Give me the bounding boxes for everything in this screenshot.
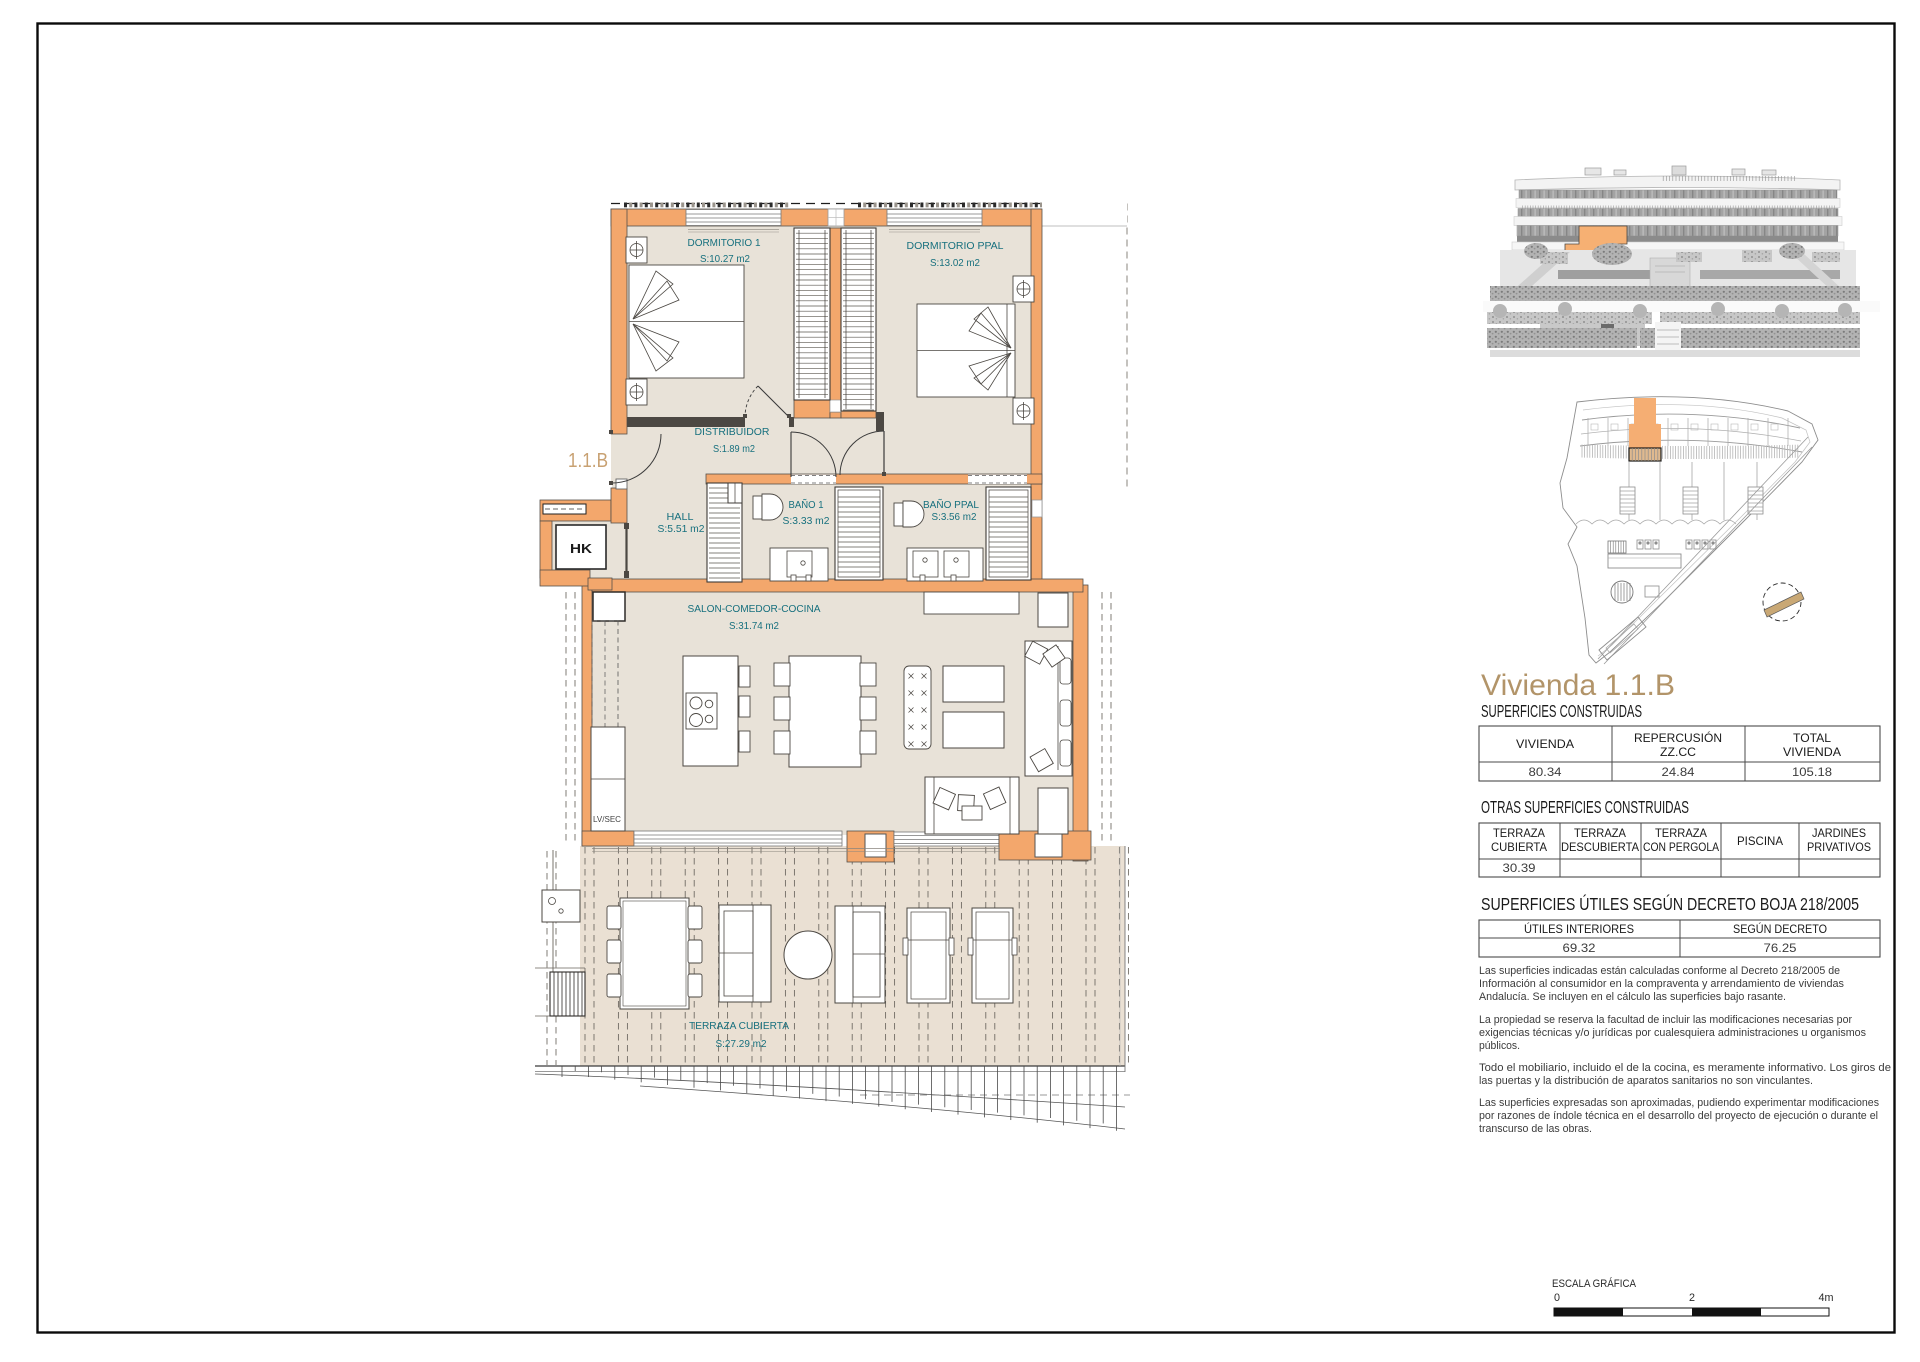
- svg-text:JARDINES: JARDINES: [1812, 826, 1866, 840]
- svg-text:Las superficies indicadas está: Las superficies indicadas están calculad…: [1479, 965, 1840, 977]
- svg-text:ÚTILES INTERIORES: ÚTILES INTERIORES: [1524, 921, 1634, 936]
- svg-text:0: 0: [1554, 1292, 1560, 1304]
- svg-text:30.39: 30.39: [1503, 861, 1536, 875]
- svg-text:80.34: 80.34: [1529, 765, 1562, 779]
- svg-text:BAÑO 1: BAÑO 1: [789, 498, 824, 511]
- svg-text:por razones de índole técnica: por razones de índole técnica en el desa…: [1479, 1110, 1878, 1122]
- svg-text:CUBIERTA: CUBIERTA: [1491, 840, 1547, 854]
- svg-text:exigencias técnicas y/o jurídi: exigencias técnicas y/o jurídicas por cu…: [1479, 1027, 1866, 1039]
- svg-text:TERRAZA: TERRAZA: [1493, 826, 1545, 840]
- svg-text:REPERCUSIÓN: REPERCUSIÓN: [1634, 730, 1722, 745]
- svg-text:Andalucía. Se incluyen en el c: Andalucía. Se incluyen en el cálculo las…: [1479, 991, 1786, 1003]
- svg-text:TOTAL: TOTAL: [1793, 731, 1831, 745]
- svg-text:PRIVATIVOS: PRIVATIVOS: [1807, 840, 1871, 854]
- svg-text:BAÑO PPAL: BAÑO PPAL: [923, 498, 979, 511]
- svg-text:S:31.74 m2: S:31.74 m2: [729, 620, 779, 632]
- svg-text:S:5.51 m2: S:5.51 m2: [658, 523, 705, 535]
- svg-text:SUPERFICIES CONSTRUIDAS: SUPERFICIES CONSTRUIDAS: [1481, 701, 1642, 721]
- svg-text:DORMITORIO 1: DORMITORIO 1: [688, 237, 761, 249]
- svg-text:HALL: HALL: [667, 511, 694, 523]
- svg-text:Las superficies expresadas son: Las superficies expresadas son aproximad…: [1479, 1097, 1879, 1109]
- svg-text:TERRAZA CUBIERTA: TERRAZA CUBIERTA: [689, 1020, 789, 1032]
- svg-text:TERRAZA: TERRAZA: [1655, 826, 1707, 840]
- svg-text:Vivienda 1.1.B: Vivienda 1.1.B: [1481, 669, 1675, 702]
- svg-text:ZZ.CC: ZZ.CC: [1660, 745, 1696, 759]
- svg-text:SALON-COMEDOR-COCINA: SALON-COMEDOR-COCINA: [688, 603, 821, 615]
- svg-text:La propiedad se reserva la fac: La propiedad se reserva la facultad de i…: [1479, 1014, 1852, 1026]
- svg-text:LV/SEC: LV/SEC: [593, 815, 621, 824]
- svg-text:PISCINA: PISCINA: [1737, 834, 1783, 848]
- svg-text:VIVIENDA: VIVIENDA: [1516, 737, 1574, 751]
- svg-text:DESCUBIERTA: DESCUBIERTA: [1561, 840, 1639, 854]
- svg-text:S:3.33 m2: S:3.33 m2: [783, 515, 830, 527]
- svg-text:2: 2: [1689, 1292, 1695, 1304]
- svg-text:HK: HK: [570, 541, 593, 556]
- svg-text:transcurso de las obras.: transcurso de las obras.: [1479, 1123, 1592, 1135]
- svg-text:1.1.B: 1.1.B: [568, 450, 608, 472]
- svg-text:105.18: 105.18: [1792, 765, 1832, 779]
- svg-text:76.25: 76.25: [1764, 941, 1797, 955]
- svg-text:VIVIENDA: VIVIENDA: [1783, 745, 1841, 759]
- svg-text:TERRAZA: TERRAZA: [1574, 826, 1626, 840]
- svg-text:Todo el mobiliario, incluido e: Todo el mobiliario, incluido el de la co…: [1479, 1062, 1891, 1074]
- svg-text:las puertas y la distribución: las puertas y la distribución de aparato…: [1479, 1075, 1813, 1087]
- svg-text:S:10.27 m2: S:10.27 m2: [700, 253, 750, 265]
- svg-text:DORMITORIO PPAL: DORMITORIO PPAL: [907, 240, 1004, 252]
- svg-text:CON PERGOLA: CON PERGOLA: [1643, 840, 1719, 854]
- svg-text:24.84: 24.84: [1662, 765, 1695, 779]
- svg-text:SUPERFICIES ÚTILES SEGÚN DECRE: SUPERFICIES ÚTILES SEGÚN DECRETO BOJA 21…: [1481, 893, 1859, 914]
- svg-text:69.32: 69.32: [1563, 941, 1596, 955]
- svg-text:S:1.89 m2: S:1.89 m2: [713, 443, 755, 455]
- svg-text:4m: 4m: [1819, 1292, 1834, 1304]
- svg-text:DISTRIBUIDOR: DISTRIBUIDOR: [695, 426, 770, 438]
- svg-text:S:3.56 m2: S:3.56 m2: [932, 511, 977, 523]
- svg-text:S:27.29 m2: S:27.29 m2: [716, 1038, 767, 1050]
- svg-text:públicos.: públicos.: [1479, 1040, 1520, 1052]
- svg-text:S:13.02 m2: S:13.02 m2: [930, 257, 980, 269]
- svg-text:OTRAS SUPERFICIES CONSTRUIDAS: OTRAS SUPERFICIES CONSTRUIDAS: [1481, 797, 1689, 817]
- svg-text:ESCALA GRÁFICA: ESCALA GRÁFICA: [1552, 1277, 1637, 1290]
- svg-text:SEGÚN DECRETO: SEGÚN DECRETO: [1733, 921, 1827, 936]
- svg-text:Información al consumidor en l: Información al consumidor en la comprave…: [1479, 978, 1844, 990]
